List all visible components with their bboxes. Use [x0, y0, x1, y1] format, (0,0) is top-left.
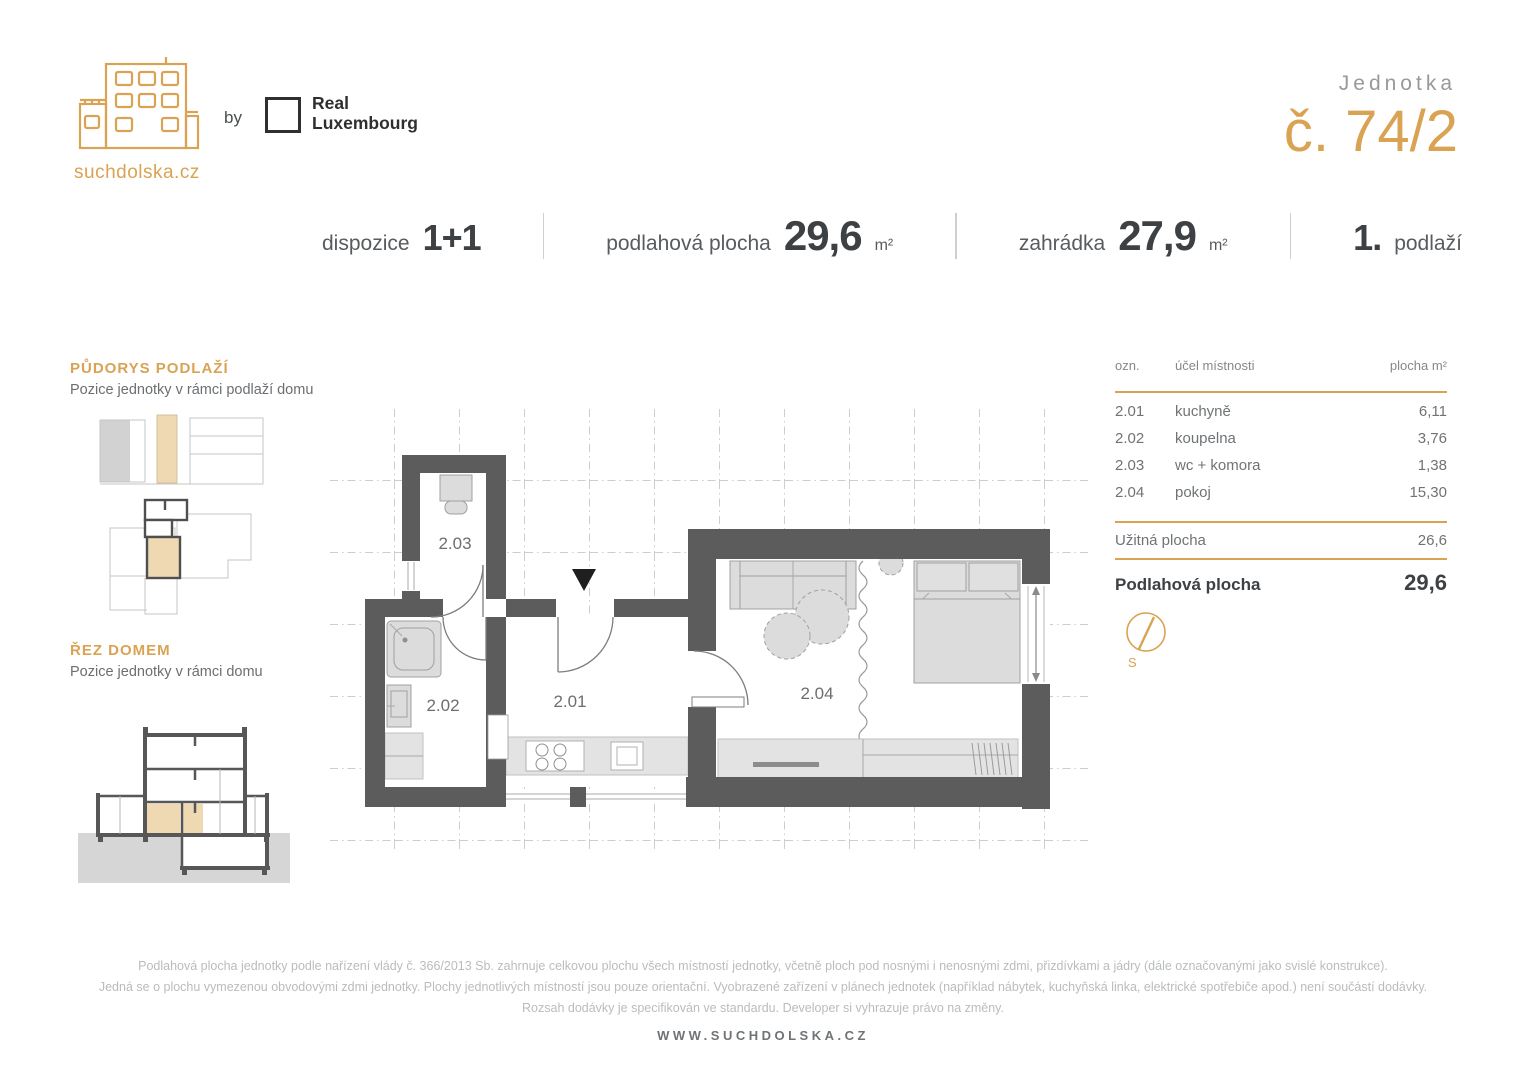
real-luxembourg-icon: [265, 97, 301, 133]
logo-suchdolska: suchdolska.cz: [74, 162, 200, 184]
rez-subtitle: Pozice jednotky v rámci domu: [70, 664, 263, 680]
spec-podlazi: 1. podlaží: [1353, 217, 1462, 259]
bed-icon: [914, 561, 1020, 683]
disclaimer: Podlahová plocha jednotky podle nařízení…: [33, 956, 1493, 1019]
compass-icon: S: [1118, 606, 1178, 672]
room-label-201: 2.01: [553, 692, 586, 711]
washing-machine-icon: [385, 733, 423, 779]
table-row: 2.02 koupelna 3,76: [1115, 430, 1447, 457]
separator: [543, 213, 545, 259]
website-link[interactable]: WWW.SUCHDOLSKA.CZ: [0, 1028, 1526, 1043]
shower-icon: [387, 621, 441, 677]
table-row: 2.03 wc + komora 1,38: [1115, 457, 1447, 484]
compass-north-label: S: [1128, 655, 1137, 670]
plan-sheet: suchdolska.cz by Real Luxembourg Jednotk…: [0, 0, 1526, 1080]
main-floor-plan: 2.03 2.02 2.01 2.04: [330, 408, 1090, 850]
toilet-icon: [440, 475, 472, 514]
real-luxembourg-logo: Real Luxembourg: [312, 93, 418, 133]
table-header: ozn. účel místnosti plocha m²: [1115, 358, 1447, 385]
room-label-202: 2.02: [426, 696, 459, 715]
suchdolska-building-icon: [78, 56, 202, 158]
spec-bar: dispozice 1+1 podlahová plocha 29,6 m² z…: [322, 212, 1462, 260]
spec-zahradka: zahrádka 27,9 m²: [1019, 212, 1228, 260]
room-label-203: 2.03: [438, 534, 471, 553]
separator: [1290, 213, 1292, 259]
pudorys-section: PŮDORYS PODLAŽÍ Pozice jednotky v rámci …: [70, 360, 313, 398]
kitchen-counter-icon: [506, 737, 688, 775]
uzitna-plocha-row: Užitná plocha 26,6: [1115, 523, 1447, 558]
sink-icon: [387, 685, 411, 727]
pudorys-title: PŮDORYS PODLAŽÍ: [70, 360, 313, 377]
table-row: 2.04 pokoj 15,30: [1115, 484, 1447, 511]
house-section-minimap: [60, 700, 320, 900]
spec-dispozice: dispozice 1+1: [322, 217, 481, 259]
by-label: by: [224, 108, 242, 128]
sideboard-icon: [718, 739, 1018, 779]
pudorys-subtitle: Pozice jednotky v rámci podlaží domu: [70, 382, 313, 398]
unit-label: Jednotka: [1339, 72, 1456, 96]
separator: [955, 213, 957, 259]
room-table: ozn. účel místnosti plocha m² 2.01 kuchy…: [1115, 358, 1447, 596]
wall-niche: [488, 715, 508, 759]
rez-section: ŘEZ DOMEM Pozice jednotky v rámci domu: [70, 642, 263, 680]
floor-position-minimap: [75, 410, 305, 622]
table-row: 2.01 kuchyně 6,11: [1115, 403, 1447, 430]
unit-number: č. 74/2: [1284, 98, 1458, 165]
podlahova-plocha-row: Podlahová plocha 29,6: [1115, 560, 1447, 596]
spec-podlahova-plocha: podlahová plocha 29,6 m²: [606, 212, 893, 260]
rez-title: ŘEZ DOMEM: [70, 642, 263, 659]
room-label-204: 2.04: [800, 684, 833, 703]
